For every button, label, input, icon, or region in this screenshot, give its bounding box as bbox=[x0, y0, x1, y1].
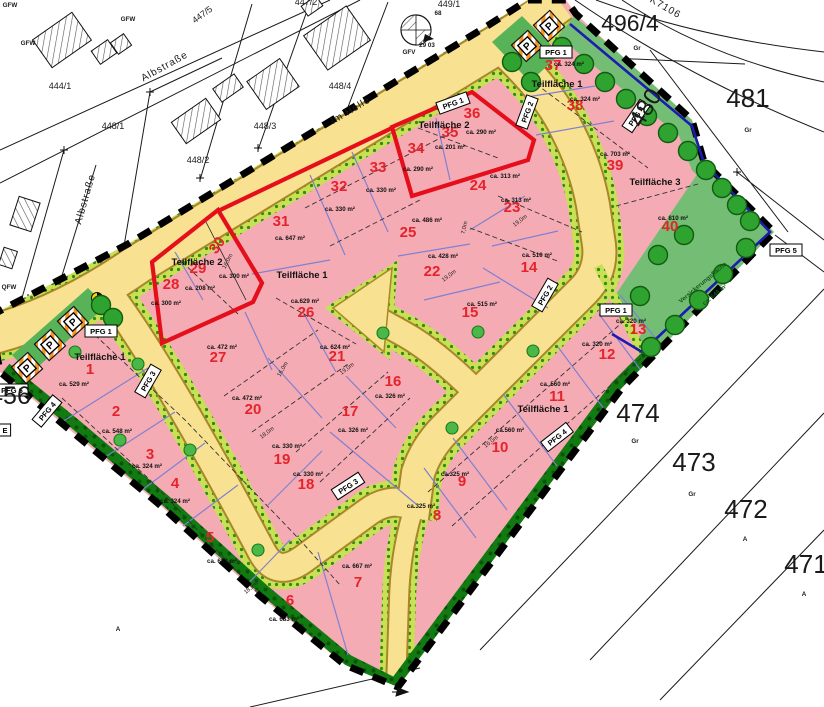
tree-icon bbox=[631, 287, 650, 306]
parcel-448-4: 448/4 bbox=[329, 81, 352, 91]
annotation-2: GFW bbox=[21, 40, 36, 47]
plot-area2-29: ca. 300 m² bbox=[219, 273, 249, 280]
plot-number-34: 34 bbox=[408, 140, 425, 157]
parcel-472: 472 bbox=[724, 494, 767, 524]
plot-number-24: 24 bbox=[470, 177, 487, 194]
teilflaeche-label-0: Teilfläche 1 bbox=[74, 352, 126, 363]
annotation-12: A bbox=[802, 591, 807, 598]
plot-number-22: 22 bbox=[424, 263, 441, 280]
building bbox=[10, 196, 40, 231]
plot-area-35: ca. 201 m² bbox=[435, 144, 465, 151]
zoning-plan-viewport: PPPPP PFG 1PFG 1PFG 1PFG 1PFG 2PFG 2PFG … bbox=[0, 0, 824, 707]
plot-area-27: ca. 472 m² bbox=[207, 344, 237, 351]
plot-area-7: ca. 667 m² bbox=[342, 563, 372, 570]
annotation-13: A bbox=[116, 626, 121, 633]
plot-number-31: 31 bbox=[273, 213, 290, 230]
parcel-447-2: 447/2 bbox=[295, 0, 318, 7]
pfg-label-text: E bbox=[2, 426, 7, 435]
tree-icon bbox=[642, 338, 661, 357]
plot-area-24: ca. 313 m² bbox=[490, 173, 520, 180]
teilflaeche-label-4: Teilfläche 2 bbox=[171, 257, 222, 268]
plot-area-26: ca.629 m² bbox=[291, 298, 319, 305]
pfg-label-pfg-5: PFG 5 bbox=[770, 244, 802, 256]
pfg-label-pfg-1: PFG 1 bbox=[85, 325, 117, 337]
plot-area-13: ca. 320 m² bbox=[616, 318, 646, 325]
tree-icon bbox=[596, 73, 615, 92]
plot-number-26: 26 bbox=[298, 304, 315, 321]
plot-area-4: ca. 324 m² bbox=[160, 498, 190, 505]
tree-icon bbox=[737, 239, 756, 258]
tree-icon bbox=[728, 196, 747, 215]
plot-number-2: 2 bbox=[112, 403, 120, 420]
plot-area-22: ca. 428 m² bbox=[428, 253, 458, 260]
plot-number-17: 17 bbox=[342, 403, 359, 420]
plot-area-11: ca. 560 m² bbox=[540, 381, 570, 388]
building bbox=[213, 74, 243, 102]
tree-icon bbox=[659, 124, 678, 143]
pfg-label-text: PFG 5 bbox=[775, 246, 797, 255]
plot-area-25: ca. 486 m² bbox=[412, 217, 442, 224]
plot-number-1: 1 bbox=[86, 361, 94, 378]
plot-number-18: 18 bbox=[298, 476, 315, 493]
tree-icon bbox=[713, 179, 732, 198]
parcel-481: 481 bbox=[726, 83, 769, 113]
teilflaeche-label-5: Teilfläche 2 bbox=[418, 120, 469, 131]
parcel-448-1: 448/1 bbox=[102, 121, 125, 131]
parcel-447-5: 447/5 bbox=[190, 4, 214, 25]
teilflaeche-label-6: Teilfläche 3 bbox=[629, 177, 680, 188]
small-tree-icon bbox=[527, 345, 539, 357]
plot-number-27: 27 bbox=[210, 349, 227, 366]
plot-area-21: ca. 624 m² bbox=[320, 344, 350, 351]
pfg-label-text: PFG 1 bbox=[605, 306, 627, 315]
plot-area-36: ca. 290 m² bbox=[466, 129, 496, 136]
plot-area-16: ca. 326 m² bbox=[375, 393, 405, 400]
parcel-473: 473 bbox=[672, 447, 715, 477]
pfg-label-pfg-1: PFG 1 bbox=[600, 304, 632, 316]
annotation-4: GFV bbox=[403, 49, 417, 56]
plot-area-31: ca. 647 m² bbox=[275, 235, 305, 242]
tree-icon bbox=[649, 246, 668, 265]
building bbox=[171, 98, 220, 143]
plot-area-17: ca. 326 m² bbox=[338, 427, 368, 434]
small-tree-icon bbox=[114, 434, 126, 446]
small-tree-icon bbox=[184, 444, 196, 456]
annotation-0: GFW bbox=[3, 2, 18, 9]
plot-area-20: ca. 472 m² bbox=[232, 395, 262, 402]
annotation-3: QFW bbox=[2, 284, 17, 291]
plot-number-6: 6 bbox=[286, 592, 294, 609]
plot-number-14: 14 bbox=[521, 259, 538, 276]
plot-area-33: ca. 330 m² bbox=[366, 187, 396, 194]
annotation-9: Gr bbox=[631, 438, 639, 445]
plot-area-12: ca. 320 m² bbox=[582, 341, 612, 348]
plot-number-20: 20 bbox=[245, 401, 262, 418]
tree-icon bbox=[741, 212, 760, 231]
pfg-label-text: PFG 1 bbox=[90, 327, 112, 336]
plot-area-3: ca. 324 m² bbox=[132, 463, 162, 470]
plot-number-11: 11 bbox=[549, 388, 565, 405]
parcel-448-3: 448/3 bbox=[254, 121, 277, 131]
plot-number-3: 3 bbox=[146, 446, 154, 463]
building bbox=[304, 6, 371, 70]
parcel-449-1: 449/1 bbox=[438, 0, 461, 9]
teilflaeche-label-3: Teilfläche 1 bbox=[531, 79, 583, 90]
tree-icon bbox=[503, 53, 522, 72]
annotation-6: 68 bbox=[434, 10, 442, 17]
plot-number-12: 12 bbox=[599, 346, 616, 363]
teilflaeche-label-1: Teilfläche 1 bbox=[276, 270, 328, 281]
annotation-1: GFW bbox=[121, 16, 136, 23]
plot-number-32: 32 bbox=[331, 178, 348, 195]
tree-icon bbox=[679, 142, 698, 161]
annotation-11: A bbox=[743, 536, 748, 543]
parcel-444-1: 444/1 bbox=[49, 81, 72, 91]
parcel-448-2: 448/2 bbox=[187, 155, 210, 165]
plot-area-37: ca. 324 m² bbox=[554, 61, 584, 68]
plot-area-8: ca.325 m² bbox=[407, 503, 435, 510]
plot-area-34: ca. 290 m² bbox=[403, 166, 433, 173]
plot-number-33: 33 bbox=[370, 159, 387, 176]
building bbox=[0, 247, 17, 268]
well-symbol bbox=[401, 15, 434, 45]
plot-area-14: ca. 510 m² bbox=[522, 252, 552, 259]
small-tree-icon bbox=[132, 358, 144, 370]
plot-number-5: 5 bbox=[206, 529, 214, 546]
pfg-label-text: PFG 1 bbox=[545, 48, 567, 57]
zoning-plan-map: PPPPP PFG 1PFG 1PFG 1PFG 1PFG 2PFG 2PFG … bbox=[0, 0, 824, 707]
plot-number-16: 16 bbox=[385, 373, 402, 390]
plot-number-7: 7 bbox=[354, 574, 362, 591]
annotation-7: Gr bbox=[633, 45, 641, 52]
plot-area-5: ca. 623 m² bbox=[207, 558, 237, 565]
plot-area-39: ca. 703 m² bbox=[600, 151, 630, 158]
plot-area-28: ca. 300 m² bbox=[151, 300, 181, 307]
plot-area-38: ca. 324 m² bbox=[570, 96, 600, 103]
plot-area-6: ca. 683 m² bbox=[269, 616, 299, 623]
plot-area-40: ca. 810 m² bbox=[658, 215, 688, 222]
tree-icon bbox=[666, 316, 685, 335]
annotation-10: Gr bbox=[688, 491, 696, 498]
small-tree-icon bbox=[377, 327, 389, 339]
plot-area-29: ca. 208 m² bbox=[185, 285, 215, 292]
plot-number-28: 28 bbox=[163, 276, 180, 293]
plot-area-2: ca. 548 m² bbox=[102, 428, 132, 435]
small-tree-icon bbox=[252, 544, 264, 556]
teilflaeche-label-2: Teilfläche 1 bbox=[517, 404, 569, 415]
tree-icon bbox=[697, 161, 716, 180]
building bbox=[247, 59, 299, 110]
plot-number-39: 39 bbox=[607, 157, 624, 174]
building bbox=[33, 12, 92, 67]
plot-area-23: ca. 313 m² bbox=[501, 197, 531, 204]
plot-area-18: ca. 330 m² bbox=[293, 471, 323, 478]
plot-area-10: ca.560 m² bbox=[496, 427, 524, 434]
parcel-471: 471 bbox=[784, 549, 824, 579]
plot-area-32: ca. 330 m² bbox=[325, 206, 355, 213]
plot-area-19: ca. 330 m² bbox=[272, 443, 302, 450]
plot-area-15: ca. 515 m² bbox=[467, 301, 497, 308]
plot-number-19: 19 bbox=[274, 451, 291, 468]
small-tree-icon bbox=[472, 326, 484, 338]
street-label-1: Albstraße bbox=[73, 173, 98, 226]
small-tree-icon bbox=[446, 422, 458, 434]
parcel-474: 474 bbox=[616, 398, 659, 428]
annotation-5: 29 03 bbox=[419, 42, 435, 49]
plot-area-1: ca. 529 m² bbox=[59, 381, 89, 388]
plot-number-4: 4 bbox=[171, 475, 180, 492]
plot-area-9: ca.325 m² bbox=[441, 471, 469, 478]
pfg-label-e: E bbox=[0, 424, 11, 436]
plot-number-25: 25 bbox=[400, 224, 417, 241]
parcel-496-4: 496/4 bbox=[601, 10, 659, 36]
annotation-8: Gr bbox=[744, 127, 752, 134]
parcel-456: 456 bbox=[0, 382, 31, 410]
